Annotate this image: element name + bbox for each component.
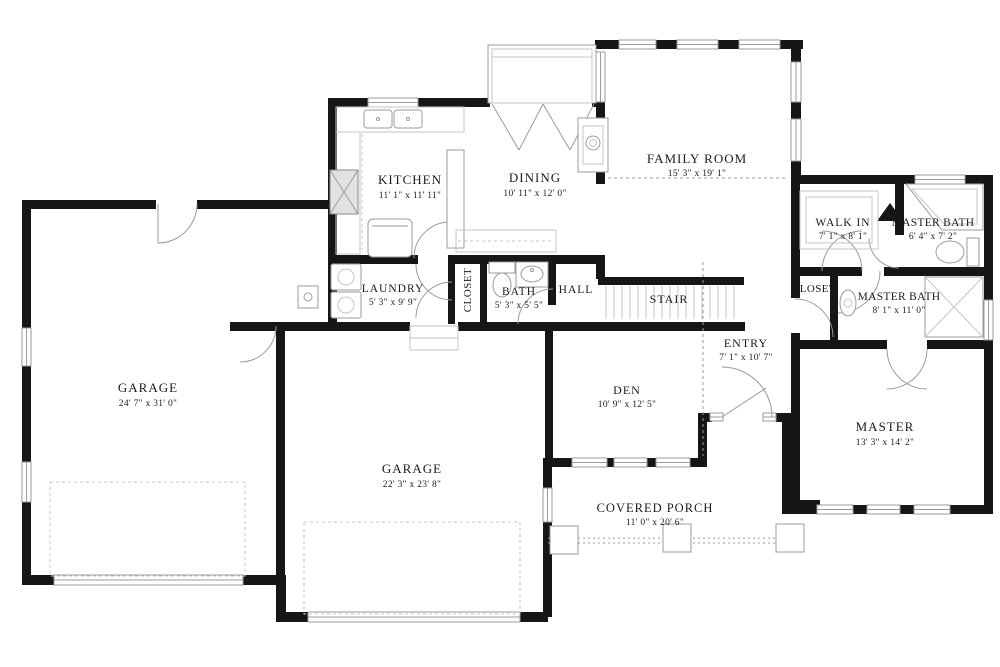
kitchen-sink <box>364 110 422 128</box>
room-label-den: DEN <box>613 383 641 397</box>
room-label-master: MASTER <box>856 419 915 434</box>
water-heater <box>298 286 318 308</box>
room-label-kitchen: KITCHEN <box>378 172 442 187</box>
den-window <box>614 458 647 467</box>
bath-sink <box>516 262 548 287</box>
room-dims-entry: 7' 1" x 10' 7" <box>719 353 772 363</box>
pedestal-sink <box>840 290 856 316</box>
porch-column <box>663 524 691 552</box>
floor-plan-drawing: KITCHEN 11' 1" x 11' 11" DINING 10' 11" … <box>0 0 1000 667</box>
refrigerator <box>368 219 412 257</box>
family-window <box>791 119 801 161</box>
room-label-family-room: FAMILY ROOM <box>647 151 747 166</box>
garage-steps <box>410 326 458 350</box>
room-dims-garage-front: 22' 3" x 23' 8" <box>383 480 441 490</box>
family-window <box>739 40 780 49</box>
room-label-master-bath-lower: MASTER BATH <box>858 291 941 303</box>
room-label-entry: ENTRY <box>724 336 768 350</box>
master-window <box>867 505 900 514</box>
garage-window <box>22 328 31 366</box>
walls <box>22 40 993 622</box>
toilet <box>936 238 979 266</box>
garage-passage-door <box>240 326 276 362</box>
entry-closet-door <box>795 299 833 337</box>
family-window <box>791 62 801 102</box>
room-dims-master: 13' 3" x 14' 2" <box>856 438 914 448</box>
floor-plan-canvas: KITCHEN 11' 1" x 11' 11" DINING 10' 11" … <box>0 0 1000 667</box>
family-window <box>677 40 718 49</box>
room-dims-kitchen: 11' 1" x 11' 11" <box>379 191 441 201</box>
bay-window <box>488 45 596 103</box>
room-label-master-bath-upper: MASTER BATH <box>892 217 975 229</box>
master-door <box>887 349 927 389</box>
garage-entry-door <box>158 204 197 243</box>
kitchen-window <box>368 98 418 107</box>
den-window <box>572 458 607 467</box>
room-dims-dining: 10' 11" x 12' 0" <box>503 189 566 199</box>
room-dims-bath: 5' 3" x 5' 5" <box>495 301 543 311</box>
room-label-garage-main: GARAGE <box>118 380 178 395</box>
room-label-covered-porch: COVERED PORCH <box>597 501 714 515</box>
room-dims-family-room: 15' 3" x 19' 1" <box>668 169 726 179</box>
entry-sidelite <box>763 413 776 421</box>
dryer <box>331 292 361 318</box>
room-label-laundry: LAUNDRY <box>362 283 425 295</box>
master-bath-window <box>915 175 965 184</box>
garage-window <box>22 462 31 502</box>
family-window <box>619 40 656 49</box>
room-dims-walk-in: 7' 1" x 8' 1" <box>819 232 867 242</box>
room-dims-master-bath-upper: 6' 4" x 7' 2" <box>909 232 957 242</box>
kitchen-laundry-door <box>414 222 450 258</box>
room-label-garage-front: GARAGE <box>382 461 442 476</box>
master-door <box>887 349 927 389</box>
room-dims-den: 10' 9" x 12' 5" <box>598 400 656 410</box>
front-door <box>722 367 772 417</box>
master-window <box>914 505 950 514</box>
dining-cabinet <box>456 230 556 252</box>
master-window <box>817 505 853 514</box>
fireplace <box>578 118 608 172</box>
room-label-stair: STAIR <box>650 292 689 306</box>
den-window <box>656 458 690 467</box>
entry-sidelite <box>710 413 723 421</box>
garage-side-door <box>543 488 552 522</box>
range-icon <box>330 170 358 214</box>
family-window <box>596 52 605 102</box>
room-label-walk-in: WALK IN <box>815 217 870 229</box>
master-bath-window <box>984 300 993 340</box>
room-label-dining: DINING <box>509 170 561 185</box>
porch-column <box>550 526 578 554</box>
room-label-closet-entry: CLOSET <box>792 283 836 295</box>
room-dims-master-bath-lower: 8' 1" x 11' 0" <box>872 306 925 316</box>
room-dims-garage-main: 24' 7" x 31' 0" <box>119 399 177 409</box>
room-label-closet-hall: CLOSET <box>462 268 474 313</box>
room-label-bath: BATH <box>502 286 536 298</box>
master-bath-upper-door <box>869 238 899 268</box>
room-label-hall: HALL <box>559 284 594 296</box>
room-dims-covered-porch: 11' 0" x 20' 6" <box>626 518 684 528</box>
bathtub <box>925 277 983 337</box>
garage-door-overhead <box>50 482 245 576</box>
room-dims-laundry: 5' 3" x 9' 9" <box>369 298 417 308</box>
washer <box>331 264 361 290</box>
porch-column <box>776 524 804 552</box>
garage-door-overhead <box>304 522 520 614</box>
